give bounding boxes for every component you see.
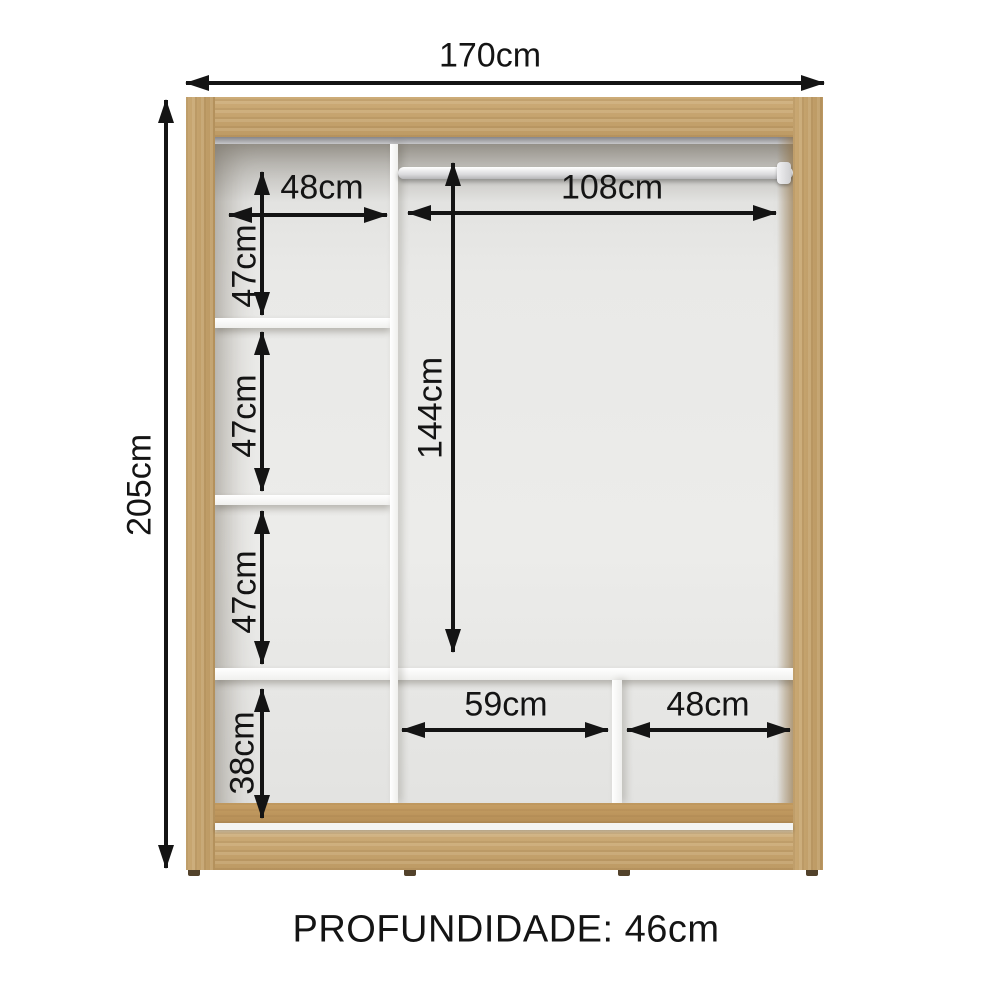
arrow-total-width	[186, 81, 824, 85]
label-left-section-2: 47cm	[226, 374, 265, 457]
label-left-column-width: 48cm	[280, 169, 363, 208]
frame-top	[186, 97, 823, 137]
label-left-section-3: 47cm	[226, 550, 265, 633]
arrow-hanging-width	[408, 211, 776, 215]
label-total-width: 170cm	[439, 37, 541, 76]
interior-right-side-panel	[777, 137, 793, 823]
label-total-height: 205cm	[121, 434, 160, 536]
arrow-bottom-middle-width	[402, 728, 608, 732]
vertical-divider-main	[390, 144, 398, 803]
hanging-rod-bracket	[777, 162, 791, 184]
foot-2	[404, 870, 416, 876]
frame-right	[793, 97, 823, 870]
label-bottom-middle-width: 59cm	[464, 686, 547, 725]
foot-3	[618, 870, 630, 876]
diagram-canvas: 170cm 205cm 48cm 47cm 47cm 47cm 38cm 108…	[0, 0, 1000, 1000]
label-hanging-width: 108cm	[561, 169, 663, 208]
arrow-bottom-right-width	[627, 728, 790, 732]
vertical-divider-bottom	[612, 680, 622, 803]
floor-front-edge	[215, 823, 793, 830]
bottom-shelf	[215, 668, 793, 680]
left-shelf-1	[215, 318, 390, 328]
left-shelf-2	[215, 495, 390, 505]
foot-4	[806, 870, 818, 876]
arrow-total-height	[164, 100, 168, 868]
frame-left	[186, 97, 215, 870]
interior-floor	[215, 803, 793, 823]
label-hanging-height: 144cm	[412, 357, 451, 459]
foot-1	[188, 870, 200, 876]
sliding-door-track	[215, 137, 793, 144]
label-depth: PROFUNDIDADE: 46cm	[292, 909, 719, 952]
label-bottom-right-width: 48cm	[666, 686, 749, 725]
arrow-left-column-width	[229, 213, 387, 217]
label-left-section-1: 47cm	[226, 224, 265, 307]
arrow-hanging-height	[451, 163, 455, 652]
frame-bottom	[186, 830, 823, 870]
label-left-bottom: 38cm	[224, 711, 263, 794]
